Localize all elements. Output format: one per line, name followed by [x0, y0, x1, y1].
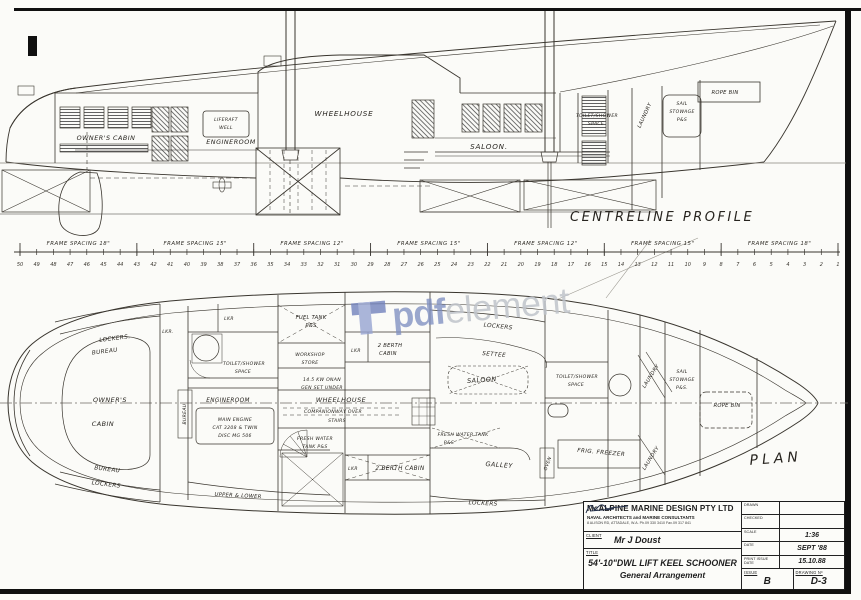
- profile-rope-bin-label: ROPE BIN: [711, 90, 738, 96]
- plan-oven-label: OVEN: [543, 456, 554, 472]
- plan-forward-compartments: [540, 352, 752, 478]
- frame-number: 25: [434, 262, 440, 268]
- plan-lockers-aft-bottom-label: LOCKERS: [91, 480, 121, 490]
- frame-number: 15: [601, 262, 607, 268]
- frame-number: 26: [417, 262, 423, 268]
- print-issue-row: PRINT ISSUE DATE 15.10.88: [742, 556, 844, 569]
- frame-number: 4: [786, 262, 789, 268]
- plan-lkr-label-a: LKR.: [162, 329, 173, 335]
- frame-number: 16: [584, 262, 590, 268]
- frame-number: 43: [134, 262, 140, 268]
- checked-value: [780, 515, 844, 527]
- frame-number: 29: [367, 262, 373, 268]
- frame-number: 6: [753, 262, 756, 268]
- frame-number: 24: [451, 262, 457, 268]
- plan-engineroom-label: ENGINEROOM: [206, 398, 250, 404]
- frame-number: 2: [820, 262, 823, 268]
- drawn-label: DRAWN: [742, 502, 780, 514]
- frame-number: 21: [501, 262, 507, 268]
- profile-forward-compartments: [560, 80, 760, 210]
- drawing-number-label: DRAWING Nº: [796, 570, 823, 575]
- frame-spacing-label: FRAME SPACING 18": [748, 241, 812, 247]
- frame-number: 32: [317, 262, 323, 268]
- plan-toilet-aft-label-2: SPACE: [235, 369, 251, 375]
- plan-main-engine-label-1: MAIN ENGINE: [218, 417, 252, 423]
- plan-toilet-aft-label-1: TOILET/SHOWER: [223, 361, 265, 367]
- frame-number: 39: [200, 262, 206, 268]
- profile-toilet-label-1: TOILET/SHOWER: [576, 113, 618, 119]
- frame-number: 11: [668, 262, 674, 268]
- profile-laundry-label: LAUNDRY: [637, 102, 654, 129]
- frame-number: 46: [84, 262, 90, 268]
- plan-lkr-mid-label: LKR: [351, 348, 361, 354]
- plan-sail-label-3: P&S.: [676, 385, 688, 391]
- scale-label: SCALE: [742, 529, 780, 541]
- blueprint-page: OWNER'S CABIN ENGINEROOM LIFERAFT WELL W…: [0, 0, 861, 600]
- profile-saloon-label: SALOON.: [470, 142, 508, 151]
- plan-owners-label-1: OWNER'S: [93, 396, 127, 404]
- frame-number: 19: [534, 262, 540, 268]
- date-value: SEPT '88: [780, 542, 844, 554]
- profile-liferaft-label-1: LIFERAFT: [214, 117, 239, 123]
- plan-berth-fwd-label-1: 2 BERTH: [378, 343, 403, 349]
- plan-cabins-mid: [345, 310, 547, 501]
- frame-number: 49: [34, 262, 40, 268]
- frame-number: 30: [351, 262, 357, 268]
- frame-number: 34: [284, 262, 290, 268]
- drawing-title-line1: 54'-10"DWL LIFT KEEL SCHOONER: [584, 558, 741, 568]
- frame-number: 44: [117, 262, 123, 268]
- plan-galley-label: GALLEY: [485, 460, 513, 470]
- plan-companionway-label: COMPANIONWAY OVER: [304, 409, 362, 415]
- issue-drawing-row: ISSUE B DRAWING Nº D-3: [742, 569, 844, 589]
- plan-rope-bin-label: ROPE BIN: [713, 403, 740, 409]
- plan-toilet-fwd-label-2: SPACE: [568, 382, 584, 388]
- frame-number: 3: [803, 262, 806, 268]
- frame-spacing-label: FRAME SPACING 15": [164, 241, 228, 247]
- scale-row: SCALE 1:36: [742, 529, 844, 542]
- plan-fuel-label-2: P&S: [305, 323, 317, 329]
- plan-lkr-label-b: LKR: [224, 316, 234, 322]
- plan-laundry-fwd-label: LAUNDRY: [641, 363, 661, 390]
- frame-number: 33: [301, 262, 307, 268]
- frame-number: 20: [518, 262, 524, 268]
- frame-spacing-label: FRAME SPACING 15": [631, 241, 695, 247]
- profile-sail-label-3: P&S: [677, 117, 687, 123]
- frame-number: 27: [401, 262, 408, 268]
- plan-main-engine-label-3: DISC MG 506: [218, 433, 252, 439]
- plan-lockers-aft-top-label: LOCKERS.: [99, 334, 131, 344]
- date-label: DATE: [742, 542, 780, 554]
- plan-settee-label: SETTEE: [482, 351, 506, 359]
- plan-freshwater-stbd-label-1: FRESH WATER TANK: [438, 432, 490, 438]
- issue-cell: ISSUE B: [742, 569, 794, 589]
- frame-number: 50: [17, 262, 23, 268]
- print-issue-label: PRINT ISSUE DATE: [742, 556, 780, 568]
- plan-labels: LOCKERS. BUREAU LKR. LKR FUEL TANK P&S T…: [91, 315, 802, 508]
- drawing-number-value: D-3: [794, 576, 845, 587]
- frame-number: 36: [251, 262, 257, 268]
- plan-freshwater-stbd-label-2: P&S: [444, 440, 454, 446]
- plan-title: PLAN: [749, 449, 802, 469]
- frame-number: 38: [217, 262, 223, 268]
- drawing-title-line2: General Arrangement: [584, 570, 741, 580]
- profile-title: CENTRELINE PROFILE: [570, 210, 754, 225]
- frame-number: 23: [468, 262, 474, 268]
- drawn-signature: [780, 502, 844, 514]
- frame-number: 42: [150, 262, 156, 268]
- frame-number: 5: [770, 262, 773, 268]
- frame-spacing-label: FRAME SPACING 12": [514, 241, 578, 247]
- frame-spacing-label: FRAME SPACING 12": [280, 241, 344, 247]
- profile-engineroom-label: ENGINEROOM: [206, 138, 256, 146]
- frame-number: 1: [836, 262, 839, 268]
- company-address: 8 ALISON RD, ATTADALE, W.A. Ph.09 330 34…: [587, 521, 738, 525]
- plan-main-engine-label-2: CAT 3208 & TWIN: [212, 425, 257, 431]
- checked-label: CHECKED: [742, 515, 780, 527]
- profile-liferaft-label-2: WELL: [219, 125, 233, 131]
- frame-number: 37: [234, 262, 241, 268]
- frame-number: 8: [720, 262, 723, 268]
- profile-construction-lines: [556, 238, 698, 300]
- frame-number: 47: [67, 262, 74, 268]
- plan-berth-fwd-label-2: CABIN: [379, 351, 397, 357]
- plan-lkr-bottom-label: LKR: [348, 466, 358, 472]
- scale-value: 1:36: [780, 529, 844, 541]
- frame-number: 41: [167, 262, 173, 268]
- issue-label: ISSUE: [744, 570, 757, 575]
- frame-number: 14: [618, 262, 624, 268]
- title-block-right: DRAWN CHECKED SCALE 1:36 DATE SEPT '88: [742, 502, 844, 589]
- frame-number: 45: [100, 262, 106, 268]
- profile-wheelhouse-label: WHEELHOUSE: [314, 109, 373, 118]
- frame-number: 12: [651, 262, 657, 268]
- frame-number: 28: [384, 262, 390, 268]
- title-block-left: McALPINE MARINE DESIGN PTY LTD NAVAL ARC…: [584, 502, 742, 589]
- plan-fuel-label-1: FUEL TANK: [296, 315, 327, 321]
- title-block: McALPINE MARINE DESIGN PTY LTD NAVAL ARC…: [583, 501, 845, 590]
- frame-number: 40: [184, 262, 190, 268]
- profile-owners-cabin-label: OWNER'S CABIN: [77, 134, 136, 142]
- plan-freshwater-port-label-2: TANK P&S: [302, 444, 327, 450]
- plan-bureau-aft-bottom-label: BUREAU: [94, 465, 121, 474]
- plan-stairs-label: STAIRS: [328, 418, 346, 424]
- title-label: TITLE: [586, 550, 598, 555]
- frame-number: 13: [634, 262, 640, 268]
- plan-lockers-fwd-top-label: LOCKERS: [483, 322, 513, 331]
- frame-number: 31: [334, 262, 340, 268]
- drawing-number-cell: DRAWING Nº D-3: [794, 569, 845, 589]
- plan-bureau-aft-top-label: BUREAU: [92, 347, 119, 356]
- client-name: Mr J Doust: [614, 535, 661, 545]
- frame-number: 22: [484, 262, 490, 268]
- frame-number: 9: [703, 262, 706, 268]
- date-row: DATE SEPT '88: [742, 542, 844, 555]
- frame-number: 17: [568, 262, 575, 268]
- plan-wheelhouse-label: WHEELHOUSE: [316, 396, 367, 404]
- plan-workshop-label-1: WORKSHOP: [295, 352, 325, 358]
- plan-genset-label-2: GEN SET UNDER: [301, 385, 343, 391]
- issue-value: B: [742, 576, 793, 587]
- plan-sail-label-2: STOWAGE: [669, 377, 694, 383]
- plan-owners-label-2: CABIN: [92, 420, 114, 428]
- plan-laundry-aft-label: LAUNDRY: [641, 445, 661, 472]
- plan-freshwater-port-label-1: FRESH WATER: [297, 436, 333, 442]
- plan-frig-freezer-label: FRIG. FREEZER: [577, 448, 625, 458]
- plan-bureau-vert-label: BUREAU: [182, 403, 188, 424]
- plan-genset-label-1: 14.5 KW ONAN: [303, 377, 341, 383]
- profile-sail-label-2: STOWAGE: [669, 109, 694, 115]
- print-issue-value: 15.10.88: [780, 556, 844, 568]
- profile-sail-label-1: SAIL: [676, 101, 687, 107]
- plan-center-trunk: [278, 305, 568, 506]
- client-row: CLIENT Mr J Doust: [584, 532, 741, 549]
- plan-workshop-label-2: STORE: [302, 360, 319, 366]
- signature-icon: [584, 502, 632, 515]
- company-subtitle: NAVAL ARCHITECTS and MARINE CONSULTANTS: [587, 515, 738, 520]
- frame-spacing-label: FRAME SPACING 15": [397, 241, 461, 247]
- ruler-segment-labels: FRAME SPACING 18"FRAME SPACING 15"FRAME …: [20, 241, 838, 256]
- plan-saloon-label: SALOON: [467, 375, 497, 385]
- frame-number: 10: [685, 262, 691, 268]
- frame-spacing-label: FRAME SPACING 18": [47, 241, 111, 247]
- frame-ruler: FRAME SPACING 18"FRAME SPACING 15"FRAME …: [14, 241, 840, 268]
- title-row: TITLE 54'-10"DWL LIFT KEEL SCHOONER Gene…: [584, 549, 741, 589]
- plan-berth-aft-label: 2 BERTH CABIN: [375, 466, 425, 472]
- plan-lockers-galley-label: LOCKERS: [468, 500, 497, 508]
- frame-number: 48: [50, 262, 56, 268]
- frame-number: 18: [551, 262, 557, 268]
- client-label: CLIENT: [586, 533, 602, 538]
- plan-toilet-fwd-label-1: TOILET/SHOWER: [556, 374, 598, 380]
- plan-sail-label-1: SAIL: [676, 369, 687, 375]
- profile-toilet-label-2: SPACE: [588, 121, 604, 127]
- frame-number: 7: [736, 262, 740, 268]
- frame-number: 35: [267, 262, 273, 268]
- profile-keel-and-bilge: [0, 148, 658, 215]
- plan-upper-lower-label: UPPER & LOWER: [214, 492, 261, 500]
- checked-row: CHECKED: [742, 515, 844, 528]
- drawn-row: DRAWN: [742, 502, 844, 515]
